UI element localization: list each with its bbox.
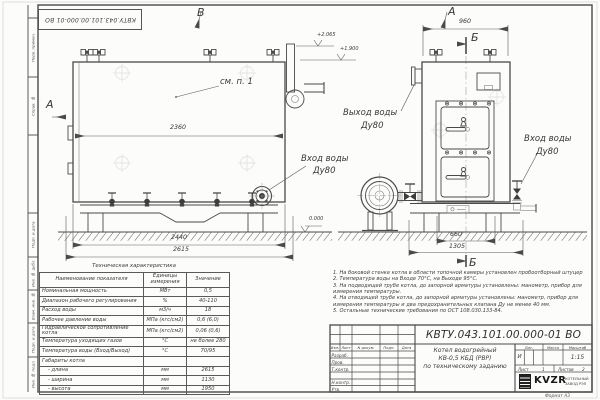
sheets-label: Листов xyxy=(558,367,574,372)
row-name: Номинальная мощность xyxy=(40,287,144,297)
row-unit: мм xyxy=(144,376,187,386)
sign-prov: Пров. xyxy=(332,360,344,365)
row-value: не более 280 xyxy=(187,337,230,347)
elevation-top: +2.065 xyxy=(317,33,336,38)
margin-label-sprav-n: Справ. № xyxy=(28,77,38,135)
col-podp: Подп. xyxy=(380,346,398,350)
row-unit: °С xyxy=(144,337,187,347)
row-unit: МПа (кгс/см2) xyxy=(144,325,187,337)
margin-label-inv-dubl: Инв. № дубл. xyxy=(28,257,38,290)
dim-base-width: 660 xyxy=(441,232,471,238)
col-izm: Изм. xyxy=(330,346,340,350)
dim-total-length: 2615 xyxy=(165,247,197,253)
table-row: Габариты котла xyxy=(40,357,230,367)
sign-razrab: Разраб. xyxy=(332,353,348,358)
elevation-mid: +1.900 xyxy=(340,47,359,52)
tech-col-units: Единицы измерения xyxy=(144,273,187,288)
table-row: - длинамм2615 xyxy=(40,366,230,376)
lit-value: И xyxy=(515,354,524,360)
doc-number: КВТУ.043.101.00.000-01 ВО xyxy=(415,329,592,341)
ground-hatch xyxy=(58,232,587,241)
table-row: Номинальная мощностьМВт0,5 xyxy=(40,287,230,297)
row-name: Гидравлическое сопротивление котла xyxy=(40,325,144,337)
see-note-callout: см. п. 1 xyxy=(220,78,253,87)
margin-label-vzam-inv: Взам. инв. № xyxy=(28,290,38,323)
row-name: Диапазон рабочего регулирования xyxy=(40,297,144,307)
row-value: 18 xyxy=(187,306,230,316)
row-value xyxy=(187,357,230,367)
table-row: - высотамм1950 xyxy=(40,385,230,395)
lit-label: Лит. xyxy=(515,346,543,350)
sheet-number: 1 xyxy=(542,367,545,372)
table-row: Температура уходящих газов°Сне более 280 xyxy=(40,337,230,347)
doc-title-line3: по техническому заданию xyxy=(415,363,515,370)
table-row: Гидравлическое сопротивление котлаМПа (к… xyxy=(40,325,230,337)
row-unit: МВт xyxy=(144,287,187,297)
mass-label: Масса xyxy=(543,346,563,350)
row-unit: м3/ч xyxy=(144,306,187,316)
outlet-label-1: Выход воды xyxy=(343,109,397,118)
outlet-label-2: Ду80 xyxy=(361,122,384,131)
row-name: Рабочее давление воды xyxy=(40,316,144,326)
row-unit xyxy=(144,357,187,367)
row-value: 40-110 xyxy=(187,297,230,307)
row-name: - длина xyxy=(40,366,144,376)
tech-table-header-row: Наименование показателя Единицы измерени… xyxy=(40,273,230,288)
technical-notes: 1. На боковой стенке котла в области топ… xyxy=(333,270,590,315)
dim-front-width: 960 xyxy=(450,19,480,25)
row-unit: МПа (кгс/см2) xyxy=(144,316,187,326)
inlet-label-side-1: Вход воды xyxy=(301,155,348,164)
col-data: Дата xyxy=(398,346,415,350)
table-row: Температура воды (Вход/Выход)°С70/95 xyxy=(40,347,230,357)
dim-total-width: 1305 xyxy=(441,244,473,250)
row-unit: °С xyxy=(144,347,187,357)
dim-base-length: 2440 xyxy=(163,235,195,241)
front-view xyxy=(357,50,536,255)
tech-col-value: Значение xyxy=(187,273,230,288)
row-value: 2615 xyxy=(187,366,230,376)
tech-table-title: Техническая характеристика xyxy=(39,263,229,269)
col-list: Лист xyxy=(340,346,352,350)
row-value: 1130 xyxy=(187,376,230,386)
kvzr-emblem-icon xyxy=(519,374,531,389)
section-a-label: А xyxy=(46,99,54,110)
kvzr-logo: KVZR xyxy=(534,375,566,386)
sign-tkontr: Т.контр. xyxy=(332,367,350,372)
row-value: 0,5 xyxy=(187,287,230,297)
scale-label: Масштаб xyxy=(563,346,592,350)
inlet-label-front-1: Вход воды xyxy=(524,135,571,144)
table-row: Диапазон рабочего регулирования%40-110 xyxy=(40,297,230,307)
sheets-number: 2 xyxy=(582,367,585,372)
table-row: - ширинамм1130 xyxy=(40,376,230,386)
brand-sub2: ЗАВОД РЭП xyxy=(565,382,586,386)
section-b-label-top: Б xyxy=(471,32,479,43)
view-b-label: В xyxy=(197,7,205,18)
note-line: 4. На отводящей трубе котла, до запорной… xyxy=(333,295,590,308)
inlet-label-side-2: Ду80 xyxy=(313,167,336,176)
col-ndokum: N докум. xyxy=(352,346,380,350)
side-view xyxy=(68,44,324,232)
top-stamp-box: КВТУ.043.101.00.000-01 ВО xyxy=(38,9,142,30)
drawing-sheet: { "stamp": "КВТУ.043.101.00.000-01 ВО", … xyxy=(0,0,600,400)
row-unit: % xyxy=(144,297,187,307)
row-name: Расход воды xyxy=(40,306,144,316)
format-label: Формат А3 xyxy=(545,394,570,399)
row-value: 1950 xyxy=(187,385,230,395)
scale-value: 1:15 xyxy=(563,354,592,361)
row-name: Температура уходящих газов xyxy=(40,337,144,347)
row-name: Температура воды (Вход/Выход) xyxy=(40,347,144,357)
sign-utv: Утв. xyxy=(332,387,341,392)
row-value: 0,6 (6,0) xyxy=(187,316,230,326)
row-value: 0,06 (0,6) xyxy=(187,325,230,337)
sheet-label: Лист xyxy=(518,367,529,372)
section-b-label-bottom: Б xyxy=(469,257,477,268)
brand-sub1: КОТЕЛЬНЫЙ xyxy=(565,377,589,381)
note-line: 5. Остальные технические требования по О… xyxy=(333,308,590,314)
sign-nkontr: Н.контр. xyxy=(332,380,351,385)
margin-label-inv-podl: Инв. № подл. xyxy=(28,357,38,392)
table-row: Рабочее давление водыМПа (кгс/см2)0,6 (6… xyxy=(40,316,230,326)
margin-label-podp-data-2: Подп. и дата xyxy=(28,323,38,357)
row-name: Габариты котла xyxy=(40,357,144,367)
tech-table: Наименование показателя Единицы измерени… xyxy=(39,272,230,395)
row-unit: мм xyxy=(144,385,187,395)
dim-body-length: 2360 xyxy=(162,125,194,131)
inlet-label-front-2: Ду80 xyxy=(536,148,559,157)
margin-label-podp-data-1: Подп. и дата xyxy=(28,213,38,257)
doc-title-line1: Котел водогрейный xyxy=(415,347,515,354)
row-name: - высота xyxy=(40,385,144,395)
view-a-label: А xyxy=(448,6,456,17)
elevation-zero: 0.000 xyxy=(309,217,323,222)
table-row: Расход водым3/ч18 xyxy=(40,306,230,316)
top-stamp-number: КВТУ.043.101.00.000-01 ВО xyxy=(45,16,136,23)
tech-col-name: Наименование показателя xyxy=(40,273,144,288)
margin-label-perv-primen: Перв. примен. xyxy=(28,18,38,77)
doc-title-line2: КВ-0,5 КБД (РВР) xyxy=(415,355,515,362)
row-name: - ширина xyxy=(40,376,144,386)
note-line: 3. На подводящей трубе котла, до запорно… xyxy=(333,283,590,296)
row-value: 70/95 xyxy=(187,347,230,357)
row-unit: мм xyxy=(144,366,187,376)
